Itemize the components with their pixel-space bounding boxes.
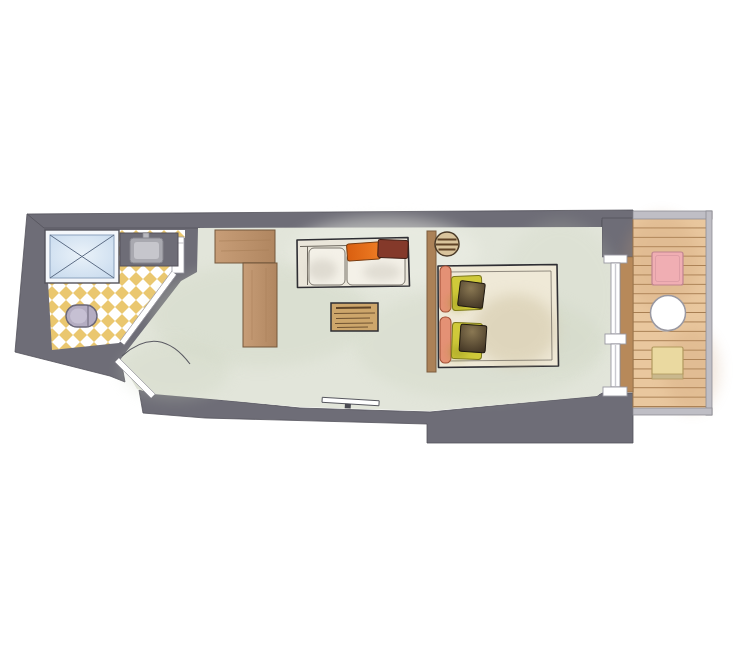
coffee-table-grain-1 <box>336 308 371 309</box>
balcony <box>624 211 720 415</box>
balcony-round-table <box>651 296 686 331</box>
window-sill-bottom <box>603 387 627 396</box>
sofa-cushion-shading-right <box>363 263 401 281</box>
balcony-yellow-chair-foot <box>652 374 683 379</box>
shower <box>45 230 119 283</box>
window-sill-top <box>604 255 627 263</box>
floor-plan-drawing <box>0 0 733 660</box>
wall-right-upper <box>602 218 633 257</box>
sofa <box>297 238 410 288</box>
window-mullion-block <box>605 334 626 344</box>
floor-plan-page <box>0 0 733 660</box>
balcony-threshold <box>620 257 633 392</box>
maroon-cushion <box>378 239 409 258</box>
sofa-cushion-shading-left <box>307 259 337 281</box>
tv-mount-knob <box>345 404 351 409</box>
wardrobe-top-section <box>215 230 275 263</box>
wall-top <box>27 210 633 229</box>
balcony-rail-bottom <box>633 408 712 415</box>
toilet <box>66 305 97 327</box>
balcony-rail-top <box>633 211 712 219</box>
headboard <box>427 231 436 372</box>
bolster-cushion-top <box>440 266 451 312</box>
orange-cushion <box>346 242 380 261</box>
balcony-yellow-chair <box>652 347 683 375</box>
coffee-table <box>331 303 378 331</box>
wardrobe-side-section <box>243 263 277 347</box>
basin-inner <box>134 242 159 259</box>
balcony-rail-right <box>706 211 712 415</box>
washbasin <box>120 233 178 266</box>
balcony-pink-chair <box>652 252 683 285</box>
dark-pillow-bottom <box>459 324 487 353</box>
bolster-cushion-bottom <box>440 317 451 363</box>
dark-pillow-top <box>458 281 486 309</box>
toilet-seat <box>70 309 87 324</box>
